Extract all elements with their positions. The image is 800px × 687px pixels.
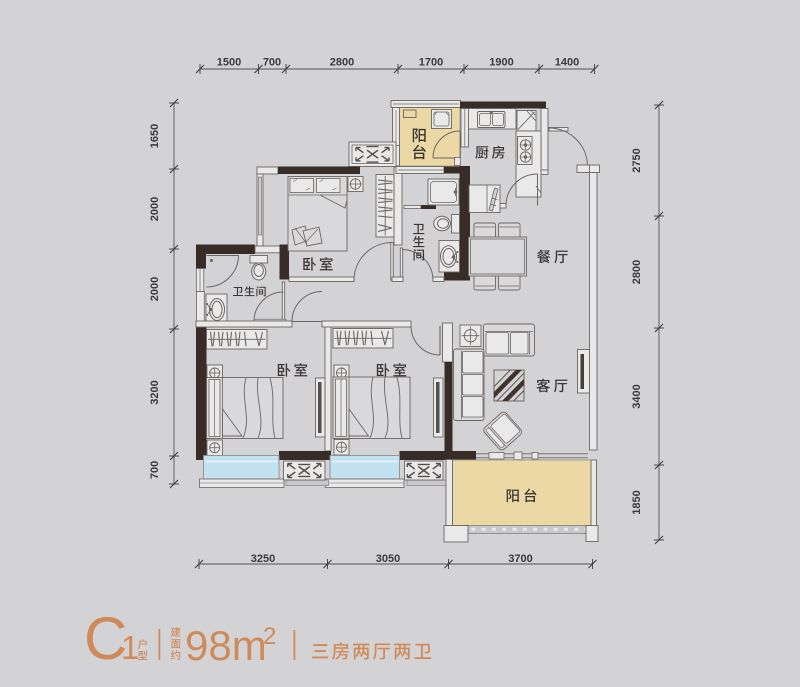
svg-text:3250: 3250	[251, 553, 275, 565]
svg-text:700: 700	[263, 57, 281, 69]
svg-text:700: 700	[149, 461, 161, 479]
svg-text:3050: 3050	[376, 553, 400, 565]
svg-text:2000: 2000	[149, 277, 161, 301]
svg-text:2750: 2750	[631, 148, 643, 172]
svg-text:1900: 1900	[489, 57, 513, 69]
svg-text:3400: 3400	[631, 384, 643, 408]
svg-text:1500: 1500	[217, 57, 241, 69]
svg-text:1400: 1400	[555, 57, 579, 69]
svg-text:2000: 2000	[149, 197, 161, 221]
svg-text:2800: 2800	[631, 260, 643, 284]
svg-text:1850: 1850	[631, 490, 643, 514]
svg-text:1650: 1650	[149, 124, 161, 148]
svg-text:2: 2	[263, 623, 276, 650]
svg-text:98m: 98m	[185, 622, 267, 669]
svg-text:3700: 3700	[508, 553, 532, 565]
svg-text:1: 1	[121, 629, 139, 666]
svg-text:1700: 1700	[419, 57, 443, 69]
svg-text:3200: 3200	[149, 380, 161, 404]
svg-text:2800: 2800	[330, 57, 354, 69]
